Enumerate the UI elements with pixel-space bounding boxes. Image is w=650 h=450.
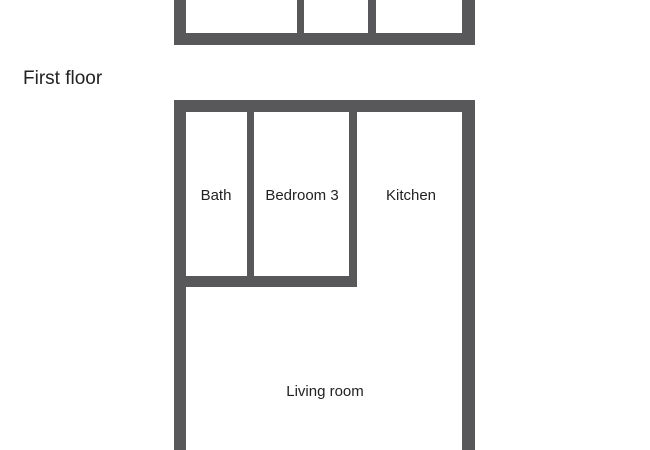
livingroom-separator-wall [174, 276, 357, 287]
bath-bedroom3-divider-wall [247, 112, 254, 277]
room-label-kitchen: Kitchen [386, 187, 436, 205]
room-label-bath: Bath [201, 187, 232, 205]
upper-plan-divider-wall-2 [368, 0, 376, 33]
first-floor-left-wall [174, 100, 186, 450]
room-label-bedroom-3: Bedroom 3 [265, 187, 338, 205]
floor-label: First floor [23, 68, 102, 90]
bedroom3-kitchen-divider-wall [349, 112, 357, 287]
room-label-living-room: Living room [286, 383, 364, 401]
upper-plan-divider-wall-1 [297, 0, 304, 33]
first-floor-top-wall [174, 100, 475, 112]
first-floor-right-wall [462, 100, 475, 450]
upper-plan-bottom-wall [174, 33, 475, 45]
floor-plan-canvas: First floor Bath Bedroom 3 Kitchen Livin… [0, 0, 650, 450]
